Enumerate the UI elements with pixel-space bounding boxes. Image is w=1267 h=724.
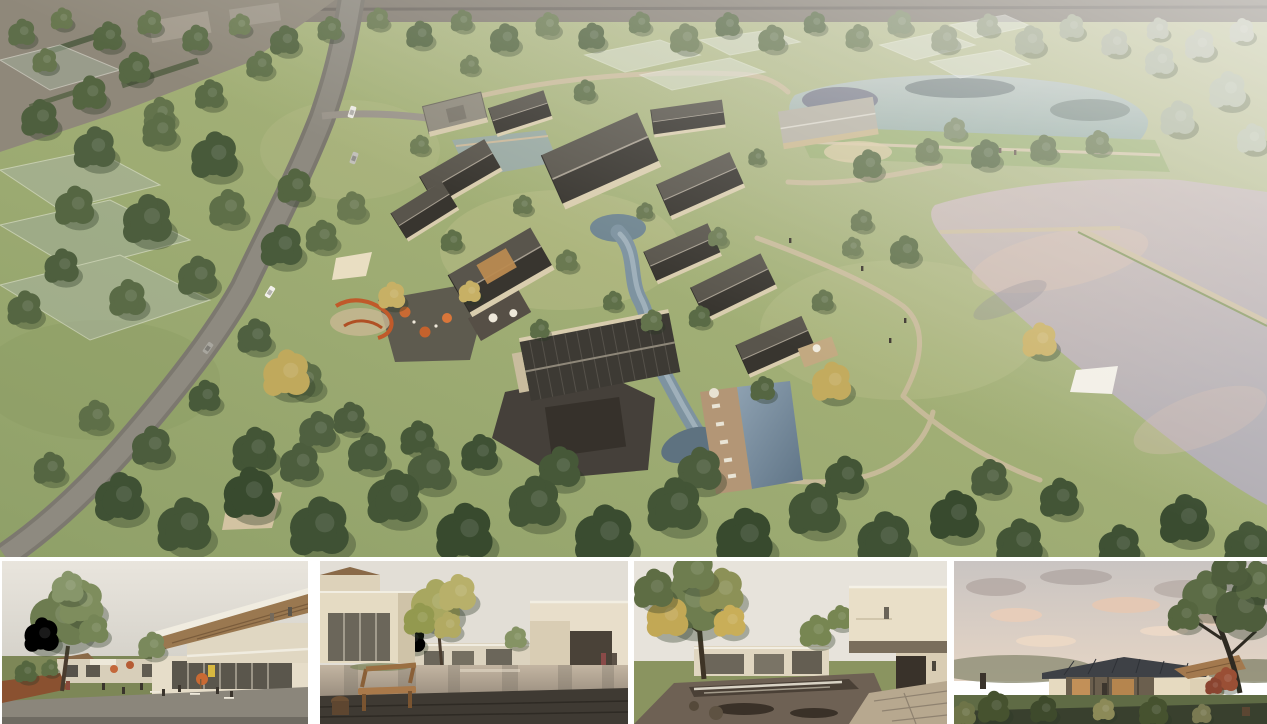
dusk-pavilion-art [954, 561, 1267, 724]
thumbnail-dusk-pavilion-view [954, 561, 1267, 724]
waterfall-courtyard-art [634, 561, 947, 724]
haze-overlay [0, 0, 1267, 557]
plaza-art [2, 561, 308, 724]
thumbnail-plaza-view [2, 561, 308, 724]
small-sign [208, 665, 215, 677]
aerial-render-art [0, 0, 1267, 557]
stump [1242, 707, 1250, 716]
thumbnail-waterfall-courtyard-view [634, 561, 947, 724]
thumbnail-courtyard-pond-view [320, 561, 628, 724]
figure [601, 653, 606, 666]
aerial-render-panel [0, 0, 1267, 557]
render-collage-board [0, 0, 1267, 724]
figure [932, 661, 936, 671]
courtyard-pond-art [320, 561, 628, 724]
figure [612, 653, 617, 666]
balcony-figure [288, 607, 292, 616]
figure [980, 673, 986, 689]
figure [66, 681, 70, 690]
balcony-figure [884, 607, 889, 619]
rock [689, 701, 699, 711]
